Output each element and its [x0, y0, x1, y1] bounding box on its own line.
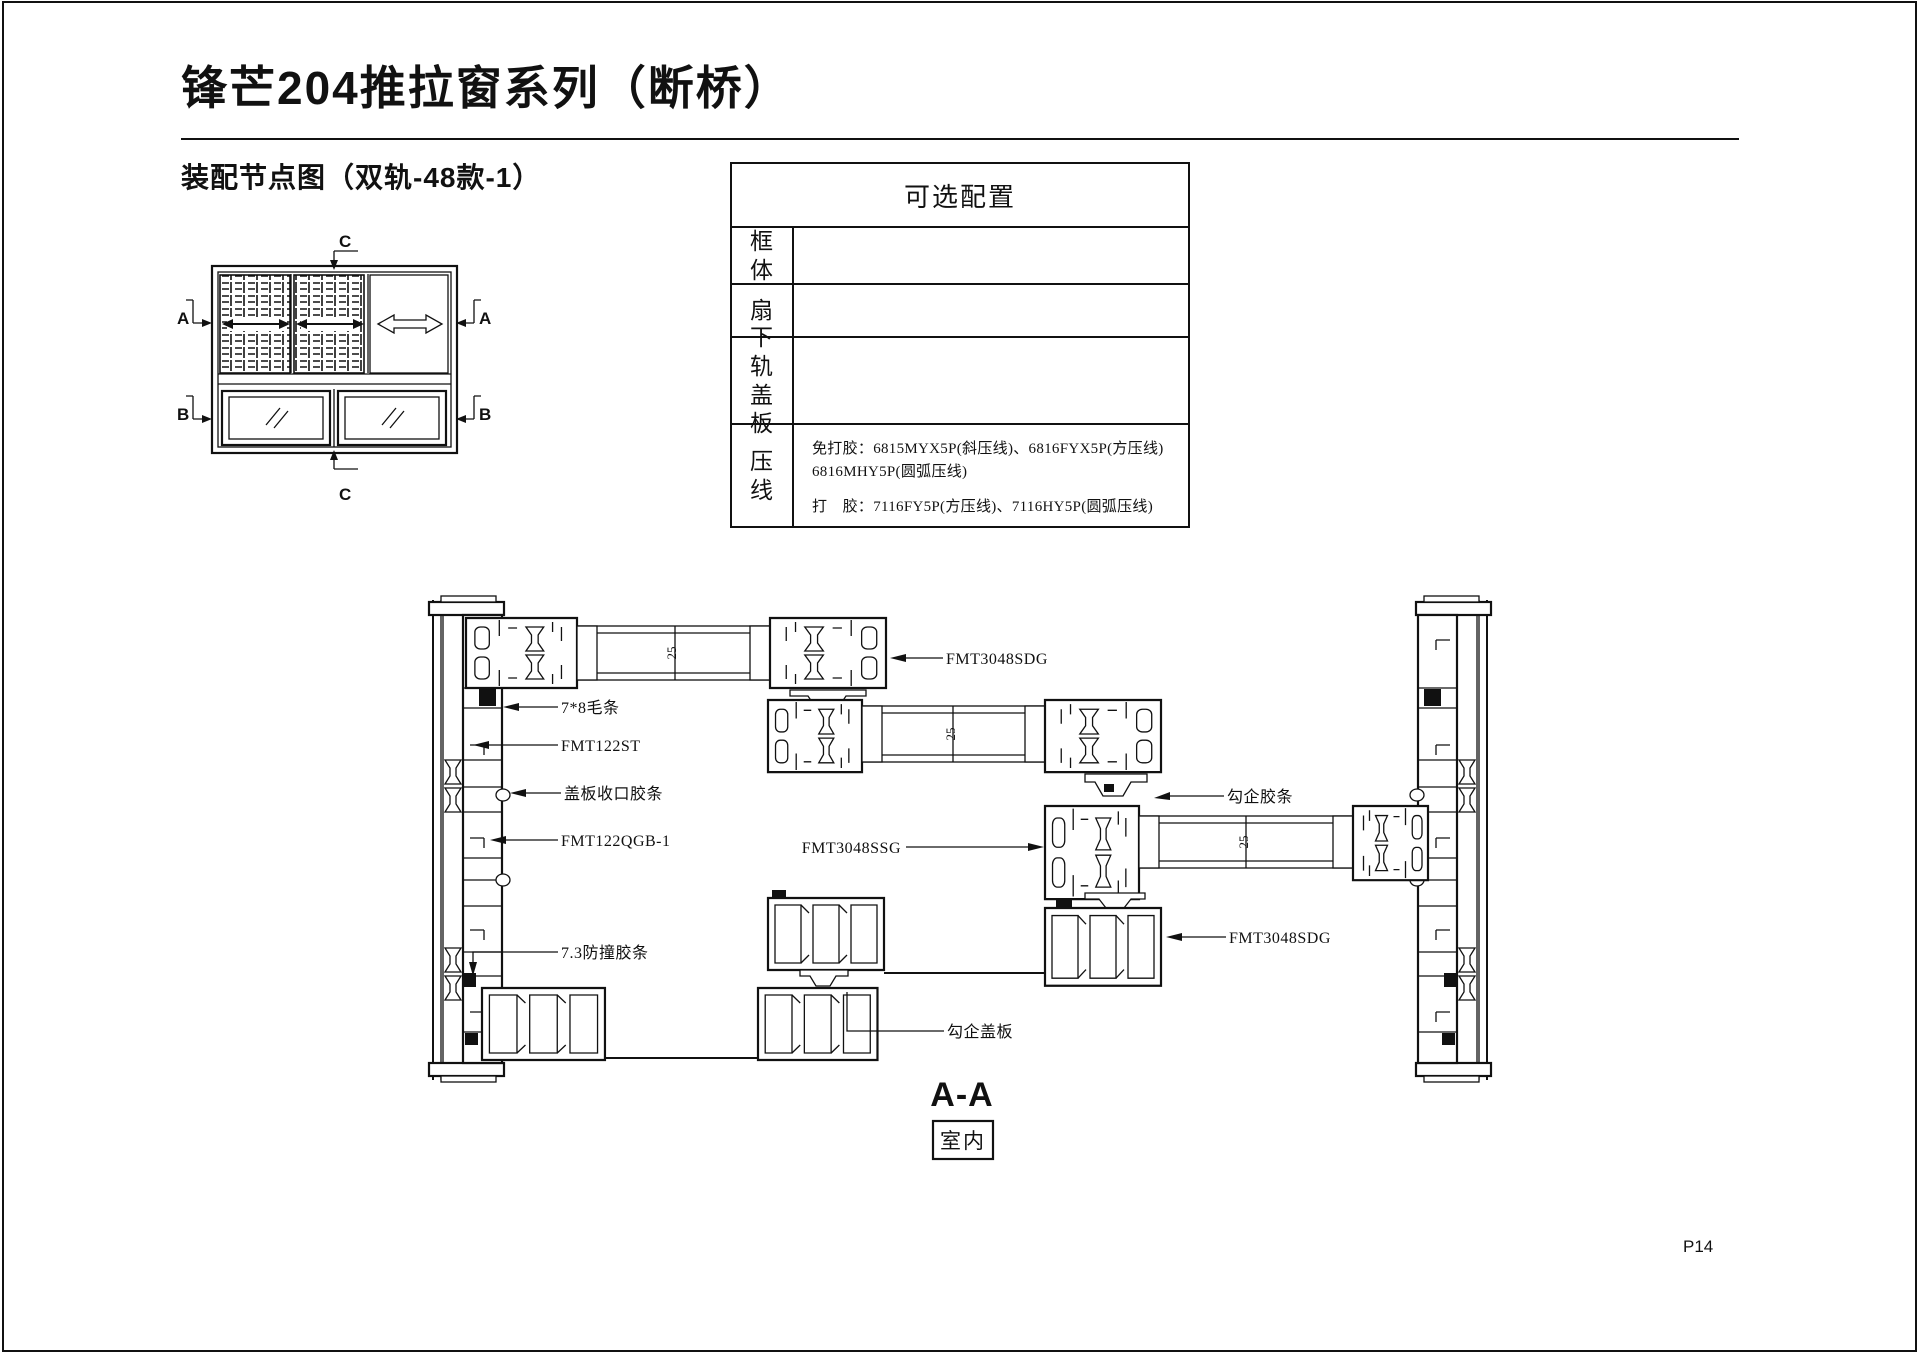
section-mark-b-right: B	[479, 405, 491, 424]
label-fmt122qgb: FMT122QGB-1	[561, 833, 671, 850]
page-title: 锋芒204推拉窗系列（断桥）	[181, 52, 792, 118]
row-label-frame: 框体	[732, 228, 794, 283]
row-label-pressline: 压线	[732, 425, 794, 526]
page-number: P14	[1683, 1237, 1713, 1257]
row-value-sash	[794, 285, 1188, 336]
title-divider	[181, 138, 1739, 140]
optional-config-table: 可选配置 框体 扇 下轨盖板 压线 免打胶：6815MYX5P(斜压线)、681…	[730, 162, 1190, 528]
label-bumper-gasket: 7.3防撞胶条	[561, 944, 649, 962]
sash-assembly-bottom: 25	[1045, 806, 1428, 908]
pressline-no-glue-cont: 6816MHY5P(圆弧压线)	[812, 462, 1180, 484]
row-value-frame	[794, 228, 1188, 283]
label-fmt3048sdg-bottom: FMT3048SDG	[1229, 930, 1331, 947]
label-hook-cover: 勾企盖板	[947, 1023, 1013, 1041]
hook-joint	[1085, 774, 1147, 796]
section-mark-a-right: A	[479, 309, 491, 328]
table-row: 压线 免打胶：6815MYX5P(斜压线)、6816FYX5P(方压线) 681…	[732, 425, 1188, 526]
row-value-pressline: 免打胶：6815MYX5P(斜压线)、6816FYX5P(方压线) 6816MH…	[794, 425, 1188, 526]
section-mark-c-bottom: C	[339, 485, 351, 504]
section-drawing-a-a: 25 25 25	[420, 590, 1520, 1170]
label-fmt122st: FMT122ST	[561, 738, 641, 755]
section-subtitle: 装配节点图（双轨-48款-1）	[181, 156, 541, 196]
row-label-bottom-track-cover: 下轨盖板	[732, 338, 794, 423]
row-value-bottom-track-cover	[794, 338, 1188, 423]
label-fmt3048sdg-top: FMT3048SDG	[946, 651, 1048, 668]
section-mark-c-top: C	[339, 232, 351, 251]
label-fmt3048ssg: FMT3048SSG	[802, 840, 901, 857]
glass-dim: 25	[1236, 836, 1251, 849]
section-title: A-A	[930, 1076, 993, 1114]
pressline-glue: 打 胶：7116FY5P(方压线)、7116HY5P(圆弧压线)	[812, 497, 1180, 519]
hook-joint	[800, 970, 848, 986]
sash-assembly-middle: 25	[768, 700, 1161, 796]
glass-dim: 25	[943, 728, 958, 741]
window-elevation-schematic: C C A A B B	[160, 228, 510, 508]
label-brush-seal: 7*8毛条	[561, 699, 620, 717]
table-row: 扇	[732, 285, 1188, 338]
hook-joint	[1085, 893, 1145, 908]
bottom-rail-box	[1045, 908, 1161, 986]
sash-assembly-top: 25	[466, 618, 886, 708]
bottom-rail-box	[768, 898, 884, 970]
table-row: 下轨盖板	[732, 338, 1188, 425]
section-mark-b-left: B	[177, 405, 189, 424]
hook-cover-box	[758, 988, 877, 1060]
glass-dim: 25	[664, 647, 679, 660]
catalog-page: 锋芒204推拉窗系列（断桥） 装配节点图（双轨-48款-1） 可选配置 框体 扇…	[0, 0, 1920, 1358]
table-row: 框体	[732, 228, 1188, 285]
bottom-left-rail-box	[482, 988, 605, 1060]
config-table-title: 可选配置	[732, 164, 1188, 228]
section-mark-a-left: A	[177, 309, 189, 328]
label-hook-gasket: 勾企胶条	[1227, 788, 1293, 806]
interior-label: 室内	[940, 1130, 986, 1153]
pressline-no-glue: 免打胶：6815MYX5P(斜压线)、6816FYX5P(方压线)	[812, 439, 1180, 461]
label-cover-gasket: 盖板收口胶条	[564, 785, 663, 803]
